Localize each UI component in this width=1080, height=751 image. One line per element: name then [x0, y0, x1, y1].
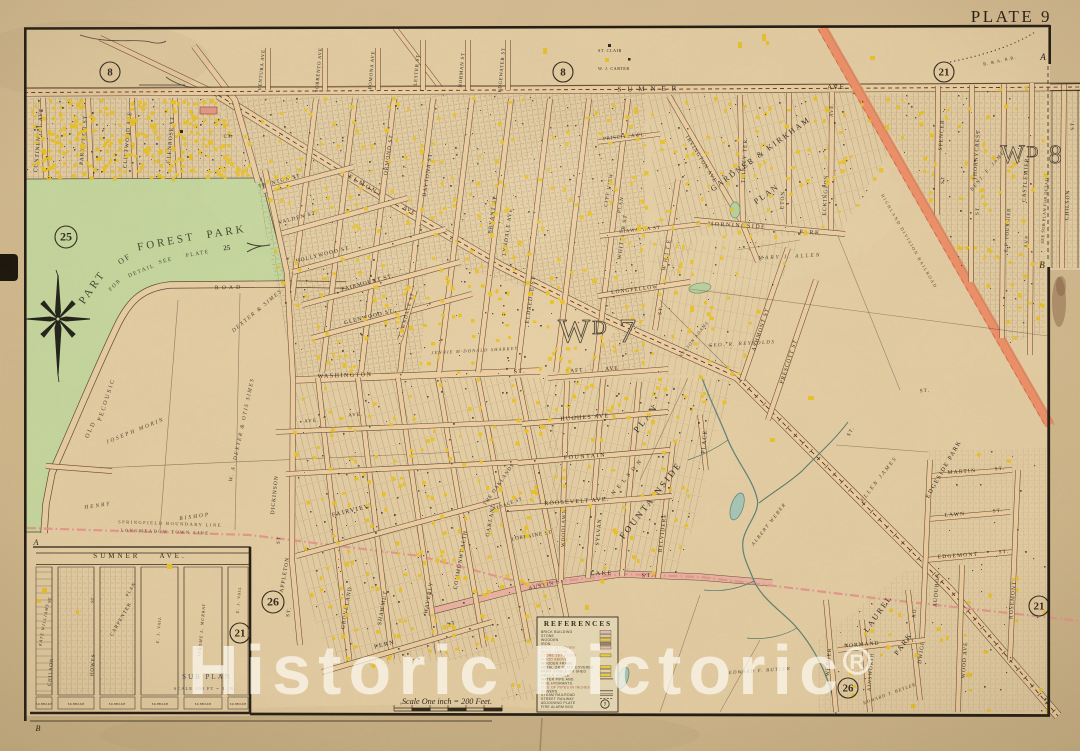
svg-text:R: R: [849, 651, 864, 674]
svg-text:Historic Pictoric: Historic Pictoric: [188, 631, 838, 709]
